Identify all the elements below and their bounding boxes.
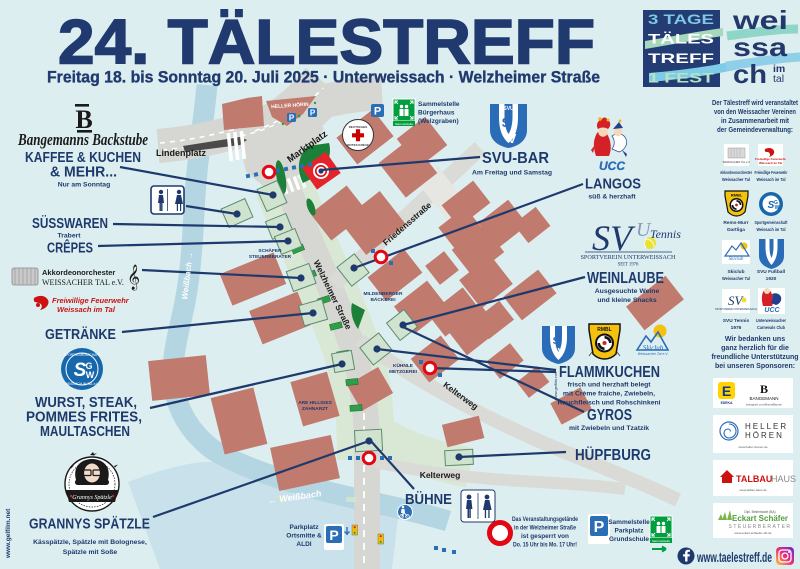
svg-text:HÜPFBURG: HÜPFBURG xyxy=(575,447,651,464)
svg-text:WEISSACHER TAL e.V.: WEISSACHER TAL e.V. xyxy=(42,278,124,287)
svg-text:HELLER: HELLER xyxy=(745,422,788,431)
svg-text:ganz herzlich für die: ganz herzlich für die xyxy=(721,345,789,352)
svg-text:ssa: ssa xyxy=(733,32,788,62)
svg-text:ch: ch xyxy=(733,59,767,89)
svg-text:Skiclub: Skiclub xyxy=(729,257,744,262)
svg-text:W: W xyxy=(775,205,780,211)
svg-text:Tennis: Tennis xyxy=(650,227,681,241)
svg-text:ROTES KREUZ: ROTES KREUZ xyxy=(347,143,369,147)
svg-text:1976: 1976 xyxy=(731,325,742,331)
svg-text:www.heller-hoeren.de: www.heller-hoeren.de xyxy=(738,445,767,449)
svg-text:ZAHNARZT: ZAHNARZT xyxy=(302,406,328,412)
svg-text:GETRÄNKE: GETRÄNKE xyxy=(45,326,116,343)
svg-text:Nur am Sonntag: Nur am Sonntag xyxy=(58,182,111,189)
svg-text:in Zusammenarbeit mit: in Zusammenarbeit mit xyxy=(721,118,790,125)
svg-text:LANGOS: LANGOS xyxy=(585,177,641,193)
svg-text:der Gemeindeverwaltung:: der Gemeindeverwaltung: xyxy=(717,127,793,134)
svg-text:Weissach im Tal: Weissach im Tal xyxy=(759,161,782,165)
svg-text:ist gesperrt von: ist gesperrt von xyxy=(521,533,569,540)
svg-text:STEUERBERATER: STEUERBERATER xyxy=(249,254,292,260)
svg-text:von den Weissacher Vereinen: von den Weissacher Vereinen xyxy=(714,109,796,116)
svg-text:instagram.com/BrezelBanner: instagram.com/BrezelBanner xyxy=(746,403,782,407)
svg-text:RMBL: RMBL xyxy=(731,193,743,198)
svg-text:DEUTSCHES: DEUTSCHES xyxy=(349,125,368,129)
svg-text:in der Welzheimer Straße: in der Welzheimer Straße xyxy=(514,525,576,532)
svg-text:P: P xyxy=(310,109,316,118)
svg-text:WEINLAUBE: WEINLAUBE xyxy=(587,270,664,287)
svg-text:www.gelfilm.net: www.gelfilm.net xyxy=(553,371,558,400)
svg-text:BANGEMANN: BANGEMANN xyxy=(749,396,778,401)
svg-text:Freitag 18. bis Sonntag 20. Ju: Freitag 18. bis Sonntag 20. Juli 2025 · … xyxy=(47,69,600,87)
svg-text:wei: wei xyxy=(732,5,788,35)
svg-text:Freiwillige Feuerwehr: Freiwillige Feuerwehr xyxy=(52,296,130,305)
svg-text:süß & herzhaft: süß & herzhaft xyxy=(588,194,636,201)
svg-text:WEISSACHER TAL e.V.: WEISSACHER TAL e.V. xyxy=(723,160,751,164)
svg-text:Parkplatz: Parkplatz xyxy=(615,528,645,535)
svg-text:Sammelstelle: Sammelstelle xyxy=(652,539,670,543)
svg-text:Kelterweg: Kelterweg xyxy=(420,470,461,480)
svg-text:BÜHNE: BÜHNE xyxy=(405,491,452,508)
svg-text:TREFF: TREFF xyxy=(648,51,714,66)
svg-text:SPORTVEREIN UNTERWEISSACH: SPORTVEREIN UNTERWEISSACH xyxy=(715,307,757,311)
svg-text:SEIT 1976: SEIT 1976 xyxy=(618,263,639,268)
svg-text:Sportgemeinschaft: Sportgemeinschaft xyxy=(755,220,788,226)
svg-text:SÜSSWAREN: SÜSSWAREN xyxy=(32,215,108,232)
svg-text:Carnevals Club: Carnevals Club xyxy=(757,325,785,331)
svg-text:UCC: UCC xyxy=(599,159,625,173)
svg-text:Dartliga: Dartliga xyxy=(727,227,745,233)
svg-text:Kässpätzle, Spätzle mit Bologn: Kässpätzle, Spätzle mit Bolognese, xyxy=(33,539,147,546)
svg-text:BÄCKEREI: BÄCKEREI xyxy=(370,296,396,303)
svg-text:RMBL: RMBL xyxy=(597,327,611,333)
svg-text:Am Freitag und Samstag: Am Freitag und Samstag xyxy=(472,170,552,177)
svg-text:Weissach im Tal: Weissach im Tal xyxy=(57,305,116,314)
svg-text:MILDENBERGER: MILDENBERGER xyxy=(364,291,403,297)
svg-text:B: B xyxy=(760,382,768,396)
svg-text:frisch und herzhaft belegt: frisch und herzhaft belegt xyxy=(567,382,651,389)
svg-text:SVU Fußball: SVU Fußball xyxy=(757,269,785,275)
svg-text:P: P xyxy=(374,106,381,118)
svg-text:24. TÄLESTREFF: 24. TÄLESTREFF xyxy=(58,8,595,78)
svg-text:www.gelfilm.net: www.gelfilm.net xyxy=(5,508,12,559)
svg-text:P: P xyxy=(289,114,295,123)
svg-text:Weissach im Tal: Weissach im Tal xyxy=(757,177,786,183)
svg-text:V: V xyxy=(558,347,565,358)
svg-text:Rems-Murr: Rems-Murr xyxy=(723,220,748,226)
svg-text:Akkordeonorchester: Akkordeonorchester xyxy=(42,268,115,277)
svg-text:V: V xyxy=(508,131,517,146)
svg-text:Bürgerhaus: Bürgerhaus xyxy=(418,110,455,117)
svg-text:www.eckart-schaefer-stb.de: www.eckart-schaefer-stb.de xyxy=(734,531,771,535)
svg-text:STEUERBERATER: STEUERBERATER xyxy=(728,524,791,530)
svg-text:Akkordeonorchester: Akkordeonorchester xyxy=(720,170,752,176)
svg-text:SCHÄFER: SCHÄFER xyxy=(258,247,282,254)
svg-text:ALDI: ALDI xyxy=(296,541,311,548)
svg-text:S: S xyxy=(502,115,511,130)
svg-text:SVU-BAR: SVU-BAR xyxy=(482,150,549,167)
svg-text:1920: 1920 xyxy=(766,276,777,282)
svg-text:Eckart Schäfer: Eckart Schäfer xyxy=(732,514,788,523)
svg-text:Skiclub: Skiclub xyxy=(727,269,744,275)
svg-text:KÜHNLE: KÜHNLE xyxy=(393,362,414,369)
svg-text:Freiwillige Feuerwehr: Freiwillige Feuerwehr xyxy=(755,170,788,176)
svg-text:(Welzgraben): (Welzgraben) xyxy=(418,118,459,125)
svg-text:tal: tal xyxy=(773,73,784,85)
svg-text:Weissach im Tal: Weissach im Tal xyxy=(757,227,786,233)
svg-text:Ausgesuchte Weine: Ausgesuchte Weine xyxy=(595,288,660,295)
svg-text:FLAMMKUCHEN: FLAMMKUCHEN xyxy=(559,364,660,381)
svg-text:Lindenplatz: Lindenplatz xyxy=(156,148,206,158)
svg-text:Weissacher Tal: Weissacher Tal xyxy=(722,177,750,183)
svg-text:Grannys Spätzle: Grannys Spätzle xyxy=(72,495,112,501)
svg-text:CRÊPES: CRÊPES xyxy=(47,239,93,257)
svg-text:Bangemanns Backstube: Bangemanns Backstube xyxy=(17,130,148,149)
svg-text:MAULTASCHEN: MAULTASCHEN xyxy=(40,424,130,440)
svg-text:SVU Tennis: SVU Tennis xyxy=(723,318,750,324)
svg-text:E: E xyxy=(722,383,731,399)
svg-text:Ortsmitte &: Ortsmitte & xyxy=(286,533,322,540)
svg-text:Grundschule: Grundschule xyxy=(609,536,649,543)
svg-text:P: P xyxy=(329,527,338,543)
svg-text:freundliche Unterstützung: freundliche Unterstützung xyxy=(711,354,798,361)
svg-text:Rauchfleisch und Rohschinkeni: Rauchfleisch und Rohschinkeni xyxy=(557,400,660,407)
svg-text:3 TAGE: 3 TAGE xyxy=(648,12,714,27)
svg-text:www.talbau-haus.de: www.talbau-haus.de xyxy=(739,488,766,492)
svg-text:& MEHR...: & MEHR... xyxy=(50,165,117,181)
svg-text:HÖREN: HÖREN xyxy=(745,431,784,440)
svg-text:Unterweissacher: Unterweissacher xyxy=(756,318,786,324)
svg-text:ARE HILLIGES: ARE HILLIGES xyxy=(298,400,332,406)
svg-text:Sammelstelle: Sammelstelle xyxy=(395,122,413,126)
svg-text:1 FEST: 1 FEST xyxy=(648,71,715,86)
svg-text:𝄞: 𝄞 xyxy=(127,264,140,290)
svg-text:W: W xyxy=(86,370,95,380)
svg-text:Spätzle mit Soße: Spätzle mit Soße xyxy=(63,549,118,556)
svg-text:P: P xyxy=(594,519,605,536)
svg-text:METZGEREI: METZGEREI xyxy=(389,369,418,375)
svg-text:S: S xyxy=(553,336,560,347)
svg-text:SPORTVEREIN UNTERWEISSACH: SPORTVEREIN UNTERWEISSACH xyxy=(580,254,676,261)
svg-text:Wir bedanken uns: Wir bedanken uns xyxy=(725,336,785,343)
svg-text:Weissacher Tal: Weissacher Tal xyxy=(722,276,750,282)
svg-text:www.taelestreff.de: www.taelestreff.de xyxy=(696,550,772,565)
svg-text:HAUS: HAUS xyxy=(771,474,796,484)
svg-text:Parkplatz: Parkplatz xyxy=(290,524,320,531)
svg-text:TALBAU: TALBAU xyxy=(736,474,772,484)
svg-text:Sammelstelle: Sammelstelle xyxy=(608,519,650,526)
svg-text:Skiclub: Skiclub xyxy=(643,344,664,352)
svg-text:GYROS: GYROS xyxy=(587,407,632,424)
svg-text:GRANNYS SPÄTZLE: GRANNYS SPÄTZLE xyxy=(29,516,150,533)
svg-text:Trabert: Trabert xyxy=(57,233,81,240)
svg-text:UCC: UCC xyxy=(764,307,780,314)
svg-text:und kleine Snacks: und kleine Snacks xyxy=(597,297,657,304)
svg-text:WEISSACH IM TAL e.V.: WEISSACH IM TAL e.V. xyxy=(65,382,99,386)
svg-text:SVU: SVU xyxy=(503,106,514,112)
svg-text:mit Crème fraiche, Zwiebeln,: mit Crème fraiche, Zwiebeln, xyxy=(563,391,655,398)
svg-text:mit Zwiebeln und Tzatzik: mit Zwiebeln und Tzatzik xyxy=(569,425,649,432)
svg-text:Weissacher Tal e.V.: Weissacher Tal e.V. xyxy=(638,352,669,356)
svg-text:bei unseren Sponsoren:: bei unseren Sponsoren: xyxy=(715,363,795,370)
svg-text:Das Veranstaltungsgelände: Das Veranstaltungsgelände xyxy=(512,516,578,523)
svg-text:TÄLES: TÄLES xyxy=(648,32,714,47)
svg-text:Sammelstelle: Sammelstelle xyxy=(418,101,460,108)
svg-text:Der Tälestreff wird veranstalt: Der Tälestreff wird veranstaltet xyxy=(712,100,799,107)
svg-text:EDEKA: EDEKA xyxy=(721,401,733,405)
svg-text:Do. 15 Uhr bis Mo. 17 Uhr!: Do. 15 Uhr bis Mo. 17 Uhr! xyxy=(513,542,577,549)
svg-text:SPORTGEMEINSCHAFT: SPORTGEMEINSCHAFT xyxy=(64,353,100,357)
